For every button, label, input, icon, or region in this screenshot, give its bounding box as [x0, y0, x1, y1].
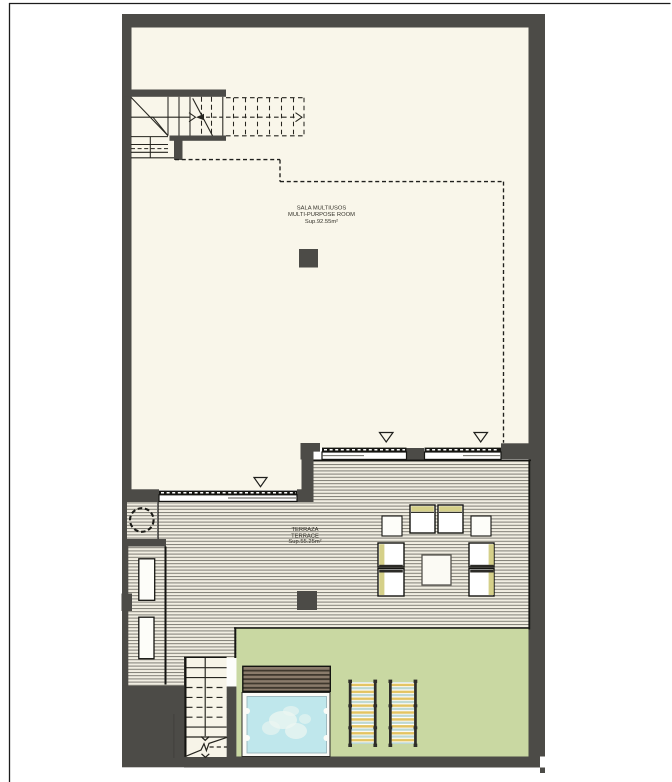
- svg-text:MULTI-PURPOSE ROOM: MULTI-PURPOSE ROOM: [288, 212, 355, 218]
- svg-text:Sup.55.25m²: Sup.55.25m²: [288, 539, 321, 545]
- svg-text:TERRAZA: TERRAZA: [291, 527, 318, 533]
- svg-text:SALA MULTIUSOS: SALA MULTIUSOS: [297, 206, 347, 212]
- svg-text:Sup.92.55m²: Sup.92.55m²: [305, 219, 338, 225]
